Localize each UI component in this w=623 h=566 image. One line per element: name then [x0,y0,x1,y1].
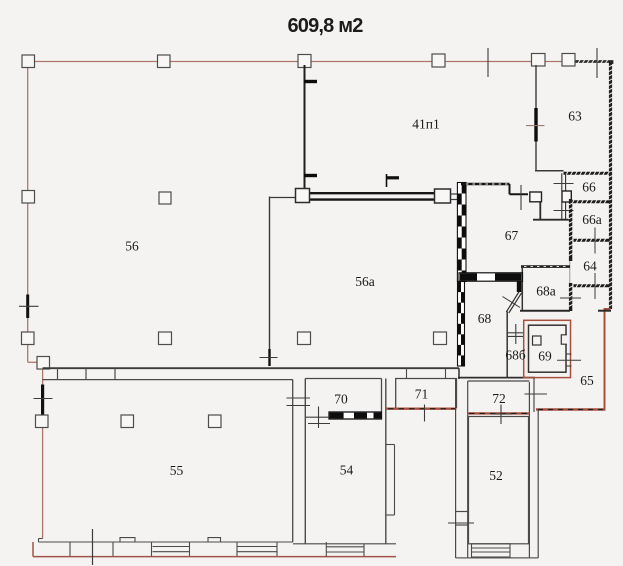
svg-text:71: 71 [415,387,429,402]
svg-text:56: 56 [125,239,139,254]
svg-text:54: 54 [340,463,354,478]
svg-text:65: 65 [580,373,594,388]
svg-text:56а: 56а [355,274,375,289]
svg-text:68а: 68а [536,284,556,299]
svg-text:66: 66 [582,180,596,195]
svg-text:72: 72 [492,391,506,406]
svg-text:66а: 66а [582,212,602,227]
svg-text:68б: 68б [505,348,526,363]
svg-text:69: 69 [538,349,552,364]
svg-text:52: 52 [489,468,503,483]
svg-text:41п1: 41п1 [412,117,439,132]
svg-text:64: 64 [583,259,597,274]
svg-text:68: 68 [478,311,492,326]
svg-text:63: 63 [568,109,582,124]
svg-text:70: 70 [334,392,348,407]
svg-text:67: 67 [505,228,519,243]
svg-text:55: 55 [170,463,184,478]
